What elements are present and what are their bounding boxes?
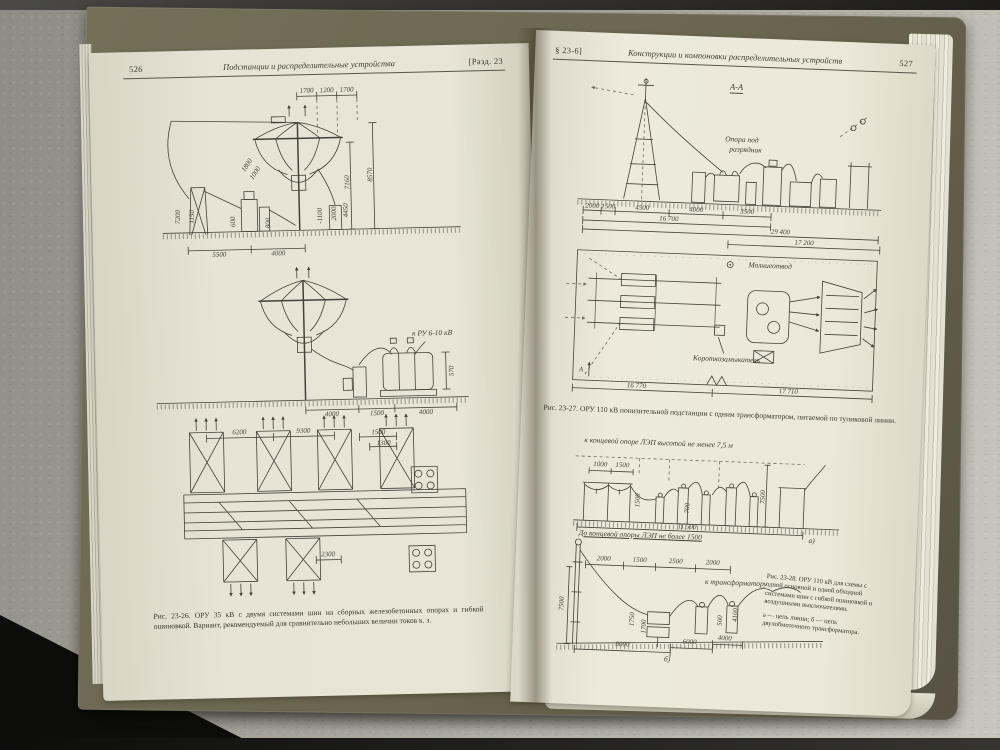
sub-figure-label-a: а) [808,537,815,545]
dim-label: 800 [265,218,272,229]
dim-label: 2000 [706,559,720,567]
dim-label: 570 [448,366,455,377]
lightning-rod-label: Молниеотвод [748,261,792,271]
dim-label: 11 500 [678,523,697,531]
dim-label: 700 [684,503,691,514]
dim-label: 6000 [682,639,696,647]
dim-label: 7200 [175,210,182,224]
figure-23-26-plan-view [182,413,468,597]
dim-label: 4000 [271,250,285,257]
dim-label: 16 770 [627,382,647,390]
dim-label: -1100 [317,208,324,224]
dim-label: 2300 [321,551,335,558]
dim-label: 1000 [593,461,607,469]
dim-label: 2500 [669,558,683,566]
dim-label: 5500 [212,252,226,259]
dim-label: 1200 [320,87,334,94]
dim-label: 1700 [640,619,648,633]
dim-label: 16 700 [659,215,679,223]
dim-label: 4100 [732,608,740,622]
dim-label: 4000 [718,635,732,643]
sub-figure-label-b: б) [664,655,671,663]
dim-label: 9300 [296,428,310,435]
bottom-shadow-strip [0,738,1000,750]
dim-label: 2000 [331,206,338,220]
dim-label: 1500 [601,203,615,211]
dim-label: 1500 [371,429,385,436]
figure-23-26-section-elevation-2 [154,264,469,418]
dim-label: 8000 [615,641,629,649]
dim-label: 1300 [377,440,391,447]
dim-label: 8570 [367,168,374,182]
book-photo: 526 Подстанции и распределительные устро… [0,0,1000,750]
figure-23-27-plan [562,234,880,403]
dim-label: 600 [230,217,237,228]
right-page: § 23-6] Конструкции и компоновки распред… [510,30,936,717]
figure-23-27-section-aa [576,76,886,245]
support-label-line2: разрядник [729,145,762,154]
dim-label: 2000 [597,555,611,563]
figure-label-ru-6-10: к РУ 6-10 кВ [412,329,452,338]
dim-label: 17 200 [794,240,814,248]
dim-label: 4000 [689,207,703,215]
dim-label: 4000 [419,409,433,416]
caption-fig-23-28: Рис. 23-28. ОРУ 110 кВ для схемы с одной… [762,573,881,640]
dim-label: 17 710 [779,388,799,396]
section-cut-label: А [579,366,584,373]
dim-label: 1700 [340,87,354,94]
dim-label: 1500 [633,557,647,565]
dim-label: 29 400 [771,229,791,237]
dim-label: 1150 [189,210,196,224]
dim-label: 2000 [585,203,599,211]
dim-label: 6200 [232,429,246,436]
dim-label: 1700 [300,87,314,94]
dim-label: 7500 [759,490,767,504]
dim-label: 7500 [558,596,566,610]
left-page: 526 Подстанции и распределительные устро… [89,43,544,701]
support-label-line1: Опора под [725,135,759,145]
dim-label: 1500 [615,462,629,470]
figure-23-28-a [573,456,842,541]
figure-23-26-section-elevation [160,89,462,256]
dim-label: 1500 [370,410,384,417]
dim-label: 7160 [344,175,351,189]
dim-label: 1500 [634,493,642,507]
dim-label: 4000 [325,411,339,418]
dim-label: 4500 [635,204,649,212]
dim-label: 4450 [343,203,350,217]
dim-label: 500 [717,615,724,626]
left-page-drawings [89,43,544,701]
dim-label: 1750 [629,612,637,626]
dim-label: 3500 [740,208,754,216]
